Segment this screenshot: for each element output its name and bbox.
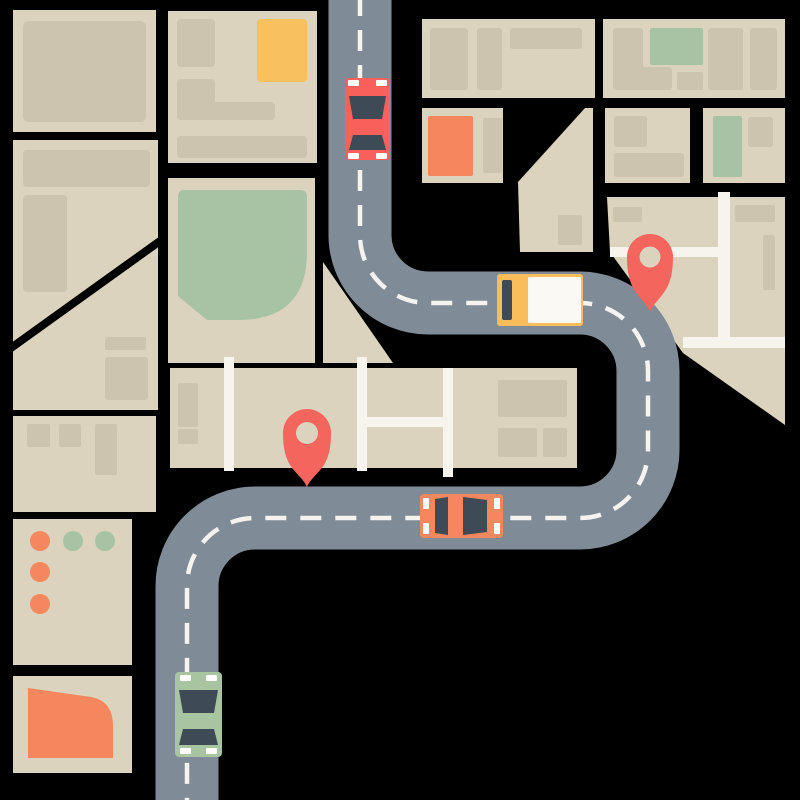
car-red-part: [348, 80, 359, 86]
car-orange-window: [463, 497, 487, 535]
building: [498, 380, 567, 417]
building: [178, 429, 198, 444]
building: [23, 195, 67, 292]
building: [430, 28, 468, 90]
dot-green-2: [95, 531, 115, 551]
dot-orange-2: [30, 562, 50, 582]
building: [23, 150, 150, 187]
car-orange-part: [494, 523, 500, 534]
orange-building: [428, 116, 473, 176]
building: [105, 337, 146, 350]
street-grid-cross-lower: [683, 337, 785, 348]
building: [477, 28, 502, 90]
building: [677, 72, 703, 90]
car-red-window: [349, 96, 386, 119]
building: [735, 205, 775, 222]
building: [708, 28, 743, 90]
delivery-truck-part: [502, 280, 512, 320]
car-red[interactable]: [345, 78, 390, 160]
map-pin-north-hole: [640, 247, 661, 268]
yellow-building: [257, 19, 307, 82]
map-pin-south-hole: [296, 422, 318, 444]
green-building-mid-right: [713, 116, 742, 177]
building: [27, 424, 50, 447]
building: [177, 136, 307, 158]
car-green-window: [179, 690, 218, 713]
building: [177, 102, 275, 120]
delivery-truck-part: [528, 277, 581, 323]
delivery-truck[interactable]: [497, 274, 583, 326]
street-grid-vertical: [718, 192, 730, 348]
building: [763, 235, 775, 290]
building: [543, 428, 567, 457]
car-red-window: [349, 135, 386, 150]
car-green[interactable]: [175, 672, 222, 757]
street-strip-cross: [367, 417, 445, 427]
dot-green-1: [63, 531, 83, 551]
building: [95, 424, 117, 475]
building: [59, 424, 81, 447]
building: [23, 21, 146, 122]
car-red-part: [348, 153, 359, 159]
car-red-part: [376, 80, 387, 86]
car-orange[interactable]: [420, 494, 503, 538]
car-orange-part: [494, 498, 500, 509]
street-strip-mid: [357, 357, 367, 471]
car-orange-window: [435, 497, 448, 535]
car-green-part: [180, 748, 191, 754]
building: [558, 215, 582, 245]
car-green-window: [179, 729, 218, 745]
building: [510, 28, 582, 49]
car-orange-part: [420, 494, 503, 538]
park-green: [178, 190, 307, 320]
street-strip-left: [224, 357, 234, 471]
building: [105, 357, 148, 400]
car-red-part: [376, 153, 387, 159]
building: [750, 28, 777, 90]
dot-orange-1: [30, 531, 50, 551]
car-orange-part: [423, 498, 429, 509]
building: [483, 118, 502, 173]
map-canvas: [0, 0, 800, 800]
building: [613, 207, 642, 222]
building: [613, 67, 672, 90]
building: [748, 117, 773, 147]
car-green-part: [206, 748, 217, 754]
car-green-part: [180, 675, 191, 681]
car-orange-part: [423, 523, 429, 534]
building: [178, 383, 198, 427]
building: [614, 116, 647, 147]
building: [498, 428, 537, 457]
building: [614, 153, 684, 177]
car-green-part: [206, 675, 217, 681]
green-building-top-right: [650, 28, 703, 65]
building: [177, 19, 215, 67]
dot-orange-3: [30, 594, 50, 614]
